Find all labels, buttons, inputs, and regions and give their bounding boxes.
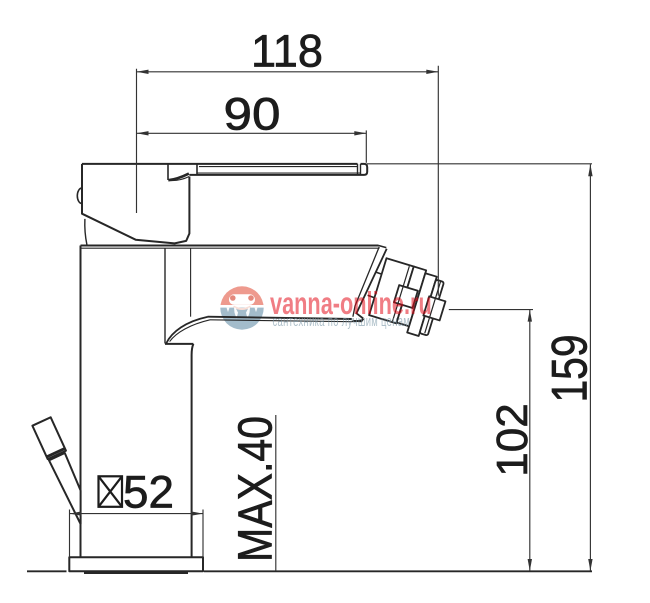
svg-text:сантехника по лучшим ценам: сантехника по лучшим ценам (273, 313, 411, 330)
svg-text:52: 52 (123, 467, 174, 518)
svg-text:118: 118 (251, 26, 323, 77)
svg-text:159: 159 (542, 335, 598, 403)
svg-text:MAX.40: MAX.40 (230, 416, 283, 562)
svg-text:102: 102 (488, 403, 537, 476)
svg-text:90: 90 (224, 89, 281, 140)
